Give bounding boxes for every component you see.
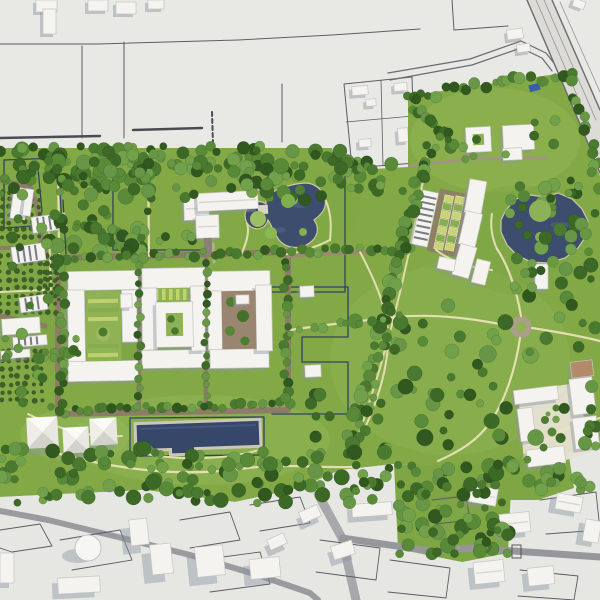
west-quad <box>68 270 138 290</box>
masterplan-rendering <box>0 0 600 600</box>
building <box>398 128 409 143</box>
building <box>43 9 56 34</box>
middle-quad <box>142 267 205 288</box>
building <box>517 43 531 53</box>
building <box>236 295 249 304</box>
roof-ridge <box>198 226 217 227</box>
chapel <box>300 286 315 298</box>
building <box>506 28 523 40</box>
building <box>148 0 164 9</box>
building <box>249 556 281 579</box>
building <box>527 566 555 587</box>
building <box>359 139 372 148</box>
building <box>366 99 376 107</box>
weeping-tree <box>529 200 551 222</box>
building <box>195 545 226 578</box>
building <box>149 543 173 575</box>
building <box>394 83 408 92</box>
building <box>58 576 101 594</box>
building <box>0 553 14 583</box>
building <box>570 360 594 379</box>
building <box>352 85 369 95</box>
masterplan-svg <box>0 0 600 600</box>
round-building <box>75 535 101 561</box>
building <box>255 285 272 351</box>
building <box>68 360 138 381</box>
chapel <box>305 365 322 378</box>
building <box>116 2 136 14</box>
building <box>129 518 150 546</box>
building <box>88 0 108 11</box>
